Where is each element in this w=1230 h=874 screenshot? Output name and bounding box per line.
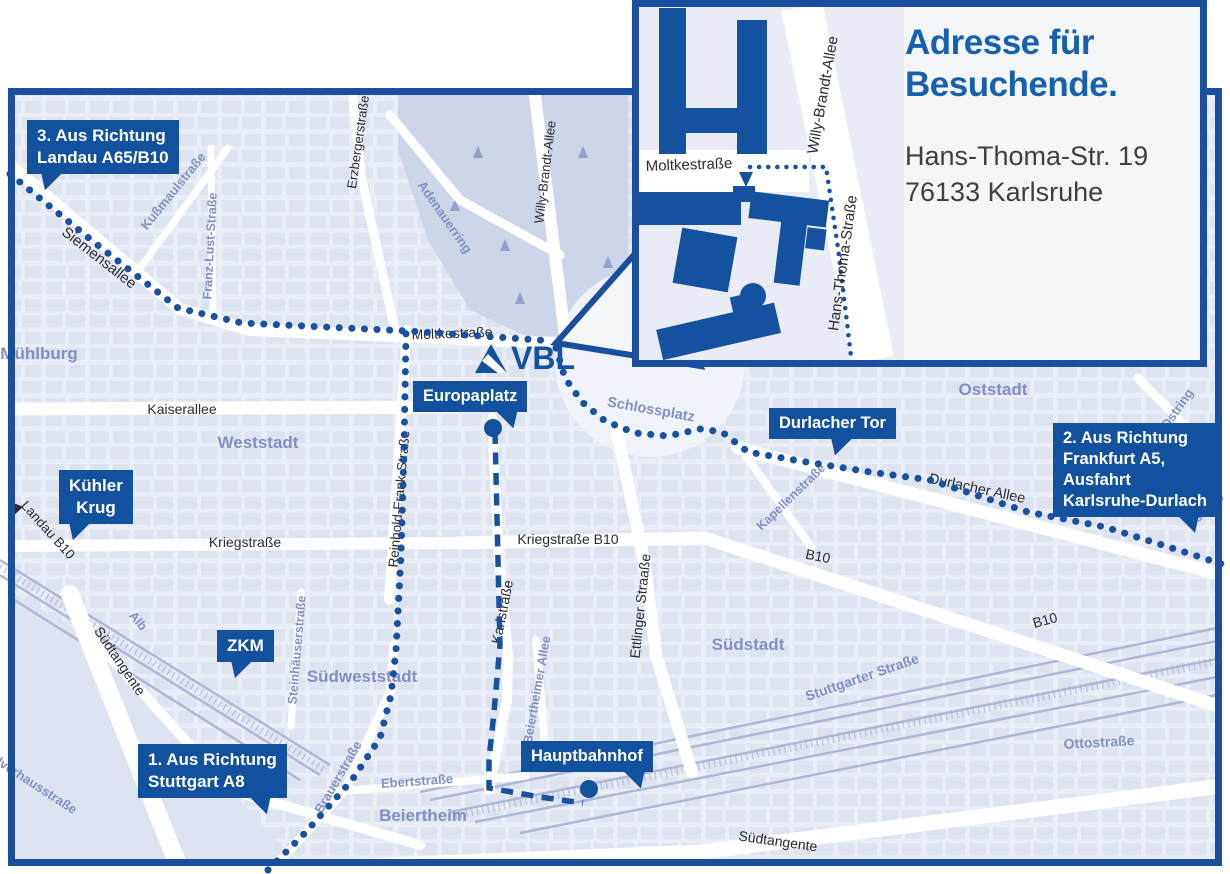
- street-label-kriegstrasse: Kriegstraße: [209, 534, 281, 550]
- callout-route2: 2. Aus Richtung Frankfurt A5, Ausfahrt K…: [1053, 423, 1217, 517]
- street-label-kriegstrasse-b10: Kriegstraße B10: [517, 531, 618, 547]
- callout-hauptbahnhof: Hauptbahnhof: [521, 741, 653, 772]
- district-label-beiertheim: Beiertheim: [379, 806, 467, 826]
- district-label-muehlburg: Mühlburg: [0, 344, 77, 364]
- callout-route3-line1: 3. Aus Richtung: [37, 125, 169, 147]
- district-label-oststadt: Oststadt: [959, 380, 1028, 400]
- callout-kuehler-krug-line1: Kühler: [69, 475, 123, 497]
- callout-durlacher-tor: Durlacher Tor: [769, 408, 896, 439]
- vbl-logo-text: VBL: [511, 340, 575, 377]
- callout-kuehler-krug-line2: Krug: [69, 497, 123, 519]
- callout-zkm: ZKM: [217, 630, 274, 662]
- callout-route1-line1: 1. Aus Richtung: [148, 749, 277, 771]
- callout-zkm-line1: ZKM: [227, 635, 264, 657]
- vbl-pyramid-icon: [474, 342, 508, 375]
- callout-route2-line4: Karlsruhe-Durlach: [1063, 491, 1207, 512]
- callout-route1: 1. Aus Richtung Stuttgart A8: [138, 744, 287, 798]
- district-label-suedweststadt: Südweststadt: [307, 667, 418, 687]
- inset-title: Adresse für Besuchende.: [905, 22, 1117, 106]
- callout-route3-line2: Landau A65/B10: [37, 147, 169, 169]
- district-label-suedstadt: Südstadt: [712, 635, 785, 655]
- inset-address-line2: 76133 Karlsruhe: [905, 174, 1148, 210]
- callout-durlacher-tor-line1: Durlacher Tor: [779, 413, 886, 434]
- inset-address: Hans-Thoma-Str. 19 76133 Karlsruhe: [905, 138, 1148, 211]
- inset-title-line1: Adresse für: [905, 22, 1117, 64]
- callout-route3: 3. Aus Richtung Landau A65/B10: [27, 120, 179, 174]
- inset-address-line1: Hans-Thoma-Str. 19: [905, 138, 1148, 174]
- callout-hauptbahnhof-line1: Hauptbahnhof: [531, 746, 643, 767]
- callout-europaplatz: Europaplatz: [413, 381, 527, 412]
- inset-label-moltkestrasse: Moltkestraße: [645, 155, 732, 175]
- callout-route2-line2: Frankfurt A5,: [1063, 449, 1207, 470]
- karlsruhe-directions-map: Siemensallee Moltkestraße Kaiserallee Kr…: [0, 0, 1230, 874]
- callout-route1-line2: Stuttgart A8: [148, 771, 277, 793]
- callout-kuehler-krug: Kühler Krug: [59, 470, 133, 524]
- callout-route2-line3: Ausfahrt: [1063, 470, 1207, 491]
- street-label-kaiserallee: Kaiserallee: [147, 401, 216, 417]
- callout-europaplatz-line1: Europaplatz: [423, 386, 517, 407]
- inset-title-line2: Besuchende.: [905, 64, 1117, 106]
- callout-route2-line1: 2. Aus Richtung: [1063, 428, 1207, 449]
- vbl-logo: VBL: [474, 340, 575, 377]
- district-label-weststadt: Weststadt: [218, 433, 299, 453]
